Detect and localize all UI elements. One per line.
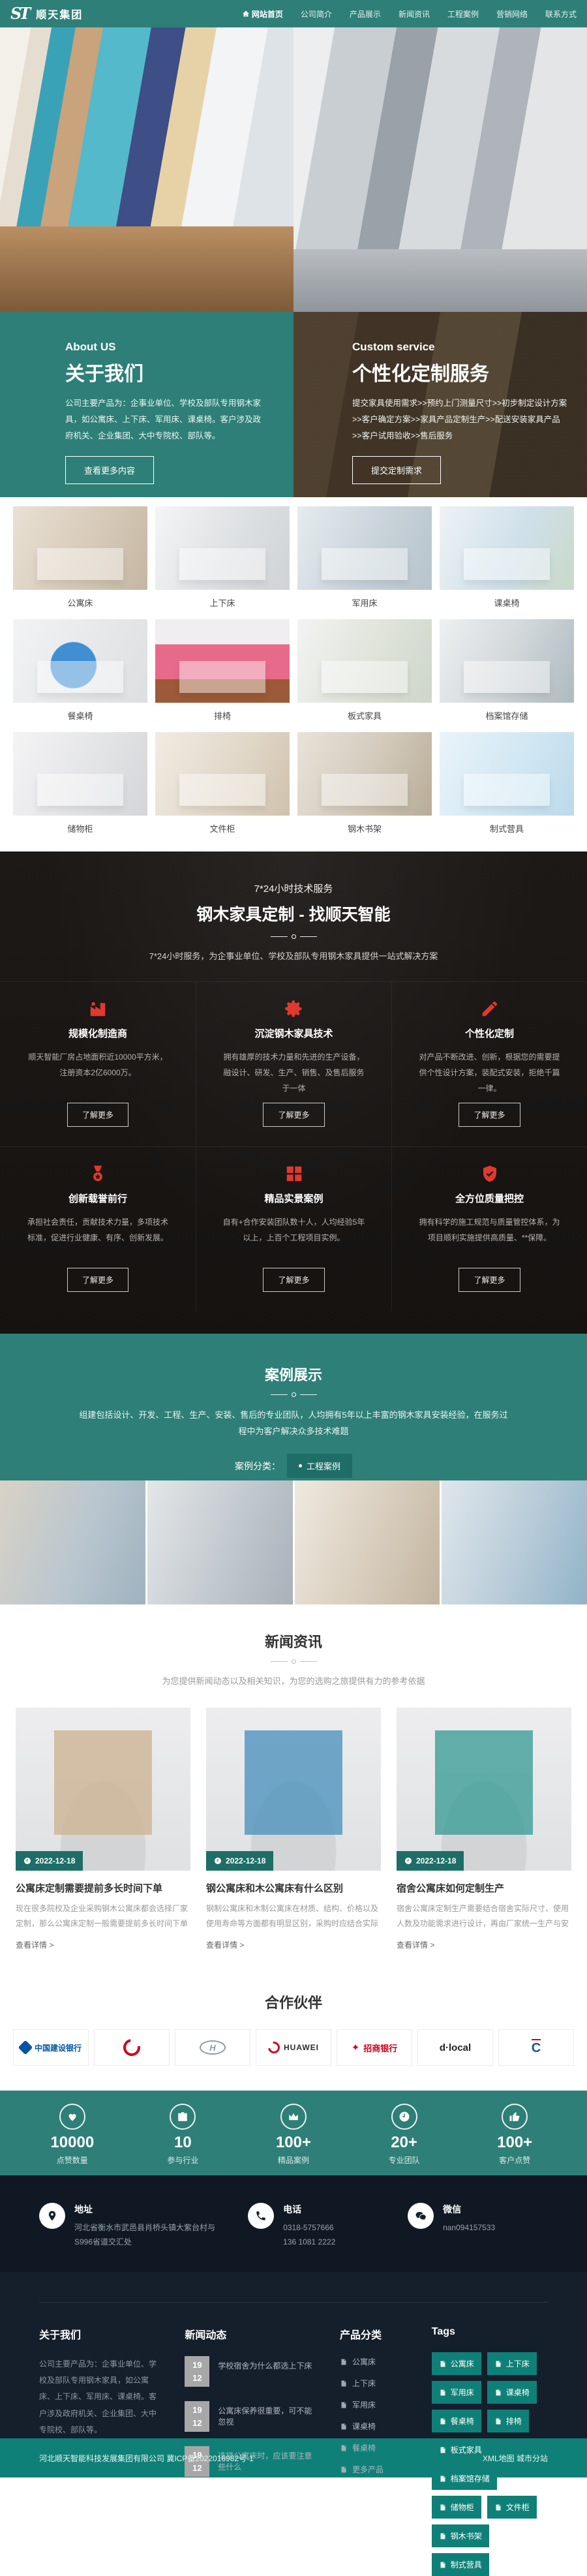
doc-icon (439, 2475, 447, 2483)
nav-item-news[interactable]: 新闻资讯 (399, 8, 430, 20)
news-image: 2022-12-18 (16, 1708, 190, 1871)
nav-label: 联系方式 (545, 8, 577, 20)
clock-icon (214, 1857, 222, 1865)
category-label: 军用床 (352, 2399, 376, 2410)
news-card[interactable]: 2022-12-18 钢公寓床和木公寓床有什么区别 钢制公寓床和木制公寓床在材质… (206, 1708, 381, 1951)
footer-about-text: 公司主要产品为：企事业单位、学校及部队专用钢木家具，如公寓床、上下床、军用床、课… (39, 2356, 160, 2438)
feature-card-innovation: 创新载誉前行 承担社会责任，贡献技术力量，多项技术标准，促进行业健康、有序、创新… (0, 1146, 196, 1311)
doc-icon (439, 2360, 447, 2368)
partners-section: 合作伙伴 中国建设银行 H HUAWEI ✦招商银行 d·local C (0, 1973, 587, 2091)
tag-button[interactable]: 课桌椅 (487, 2381, 537, 2404)
product-label: 档案馆存储 (440, 703, 574, 727)
product-label: 制式营具 (440, 816, 574, 840)
case-image-1[interactable] (0, 1480, 145, 1604)
tag-button[interactable]: 板式家具 (432, 2438, 489, 2461)
partner-logo-huawei[interactable]: HUAWEI (256, 2029, 331, 2066)
product-card-school-desk[interactable]: 课桌椅 (440, 506, 574, 614)
news-subtitle: 为您提供新闻动态以及相关知识，为您的选购之旅提供有力的参考依据 (16, 1674, 571, 1687)
factory-icon (25, 999, 171, 1021)
tag-button[interactable]: 储物柜 (432, 2496, 481, 2519)
feature-body: 自有+合作安装团队数十人，人均经验5年以上，上百个工程项目实例。 (221, 1214, 367, 1261)
product-image (13, 506, 147, 590)
footer-column-title: 新闻动态 (185, 2326, 315, 2342)
partner-logo-text: d·local (440, 2042, 471, 2053)
tag-button[interactable]: 军用床 (432, 2381, 481, 2404)
product-image (440, 619, 574, 703)
news-date: 2022-12-18 (416, 1856, 456, 1865)
nav-item-products[interactable]: 产品展示 (350, 8, 381, 20)
wechat-icon (408, 2203, 434, 2229)
partner-logo-text: C (532, 2039, 541, 2056)
category-label: 餐桌椅 (352, 2442, 376, 2453)
medal-icon (25, 1164, 171, 1186)
feature-title: 规模化制造商 (25, 1026, 171, 1040)
contact-address: 地址 河北省衡水市武邑县肖桥头镇大紫台村与 S996省道交汇处 (39, 2203, 228, 2245)
nav-item-cases[interactable]: 工程案例 (447, 8, 479, 20)
nav-item-home[interactable]: 网站首页 (242, 8, 283, 20)
footer-divider (39, 2302, 548, 2303)
partner-logo-dlocal[interactable]: d·local (417, 2029, 493, 2066)
case-showcase-section: 案例展示 组建包括设计、开发、工程、生产、安装、售后的专业团队，人均拥有5年以上… (0, 1334, 587, 1480)
news-card-title[interactable]: 公寓床定制需要提前多长时间下单 (16, 1881, 190, 1895)
product-card-military-bed[interactable]: 军用床 (297, 506, 432, 614)
news-date-badge: 2022-12-18 (206, 1851, 273, 1871)
stat-cases: 100+ 精品案例 (238, 2104, 349, 2162)
stat-value: 10 (128, 2134, 239, 2153)
footer-news-column: 新闻动态 1912 学校宿舍为什么都选上下床 1912 公寓床保养很重要，可不能… (185, 2326, 315, 2576)
footer-column-title: Tags (432, 2326, 548, 2338)
footer-categories-column: 产品分类 公寓床 上下床 军用床 课桌椅 餐桌椅 更多产品 (340, 2326, 407, 2576)
news-detail-link[interactable]: 查看详情 > (206, 1939, 244, 1950)
hero-banner (0, 27, 587, 312)
doc-icon (439, 2446, 447, 2454)
tag-button[interactable]: 制式营具 (432, 2553, 489, 2576)
section-divider-ornament (16, 1659, 571, 1664)
case-image-row (0, 1480, 587, 1604)
nav-label: 网站首页 (252, 8, 283, 20)
contact-phone: 电话 0318-5757666 136 1081 2222 (248, 2203, 388, 2245)
doc-icon (340, 2423, 348, 2430)
stat-label: 专业团队 (349, 2154, 460, 2166)
feature-body: 顺天智能厂房占地面积近10000平方米，注册资本2亿6000万。 (25, 1049, 171, 1096)
product-image (155, 732, 290, 816)
huawei-petal-icon (265, 2039, 282, 2055)
about-more-button[interactable]: 查看更多内容 (65, 456, 154, 484)
custom-service-panel: Custom service 个性化定制服务 提交家具使用需求>>预约上门测量尺… (293, 312, 587, 497)
product-image (440, 732, 574, 816)
contact-line: 136 1081 2222 (283, 2235, 335, 2250)
about-body: 公司主要产品为：企事业单位、学校及部队专用钢木家具，如公寓床、上下床、军用床、课… (65, 395, 267, 444)
category-label: 更多产品 (352, 2464, 384, 2475)
doc-icon (494, 2504, 502, 2511)
product-image (155, 506, 290, 590)
nav-label: 工程案例 (447, 8, 479, 20)
footer-category-link[interactable]: 军用床 (340, 2399, 407, 2410)
nav-label: 新闻资讯 (399, 8, 430, 20)
product-label: 板式家具 (297, 703, 432, 727)
feature-body: 承担社会责任，贡献技术力量，多项技术标准，促进行业健康、有序、创新发展。 (25, 1214, 171, 1261)
product-image (155, 619, 290, 703)
hero-image-wood-dorm (0, 27, 293, 312)
contact-line: 河北省衡水市武邑县肖桥头镇大紫台村与 (74, 2221, 215, 2235)
footer-news-title: 学校宿舍为什么都选上下床 (218, 2356, 312, 2387)
case-title: 案例展示 (0, 1364, 587, 1385)
doc-icon (340, 2444, 348, 2452)
case-filter-label: 案例分类： (235, 1460, 280, 1473)
nav-label: 公司简介 (301, 8, 332, 20)
nav-item-company[interactable]: 公司简介 (301, 8, 332, 20)
tag-button[interactable]: 文件柜 (487, 2496, 537, 2519)
product-label: 排椅 (155, 703, 290, 727)
footer-news-date: 1912 (185, 2401, 209, 2432)
footer-category-link[interactable]: 餐桌椅 (340, 2442, 407, 2453)
product-label: 文件柜 (155, 816, 290, 840)
doc-icon (494, 2360, 502, 2368)
product-label: 储物柜 (13, 816, 147, 840)
stat-value: 100+ (459, 2134, 570, 2153)
clock-icon (23, 1857, 31, 1865)
feature-body: 拥有雄厚的技术力量和先进的生产设备，融设计、研发、生产、销售、及售后服务于一体 (221, 1049, 367, 1096)
about-title: 关于我们 (65, 358, 267, 386)
product-image (440, 506, 574, 590)
stat-value: 100+ (238, 2134, 349, 2153)
product-image (13, 619, 147, 703)
stat-label: 参与行业 (128, 2154, 239, 2166)
feature-card-cases: 精品实景案例 自有+合作安装团队数十人，人均经验5年以上，上百个工程项目实例。 … (196, 1146, 391, 1311)
tag-button[interactable]: 档案馆存储 (432, 2467, 497, 2490)
partner-logo-ccb[interactable]: 中国建设银行 (13, 2029, 89, 2066)
footer-tags-column: Tags 公寓床 上下床 军用床 课桌椅 餐桌椅 排椅 板式家具 档案馆存储 储… (432, 2326, 548, 2576)
contact-label: 微信 (443, 2203, 495, 2216)
news-detail-link[interactable]: 查看详情 > (16, 1939, 53, 1950)
product-card-bookshelf[interactable]: 钢木书架 (297, 732, 432, 840)
contact-line: S996省道交汇处 (74, 2235, 215, 2250)
product-category-grid: 公寓床 上下床 军用床 课桌椅 餐桌椅 排椅 板式家具 档案馆存储 储物柜 文件… (0, 497, 587, 851)
tag-button[interactable]: 公寓床 (432, 2352, 481, 2375)
stat-likes: 10000 点赞数量 (17, 2104, 128, 2162)
stat-team: 20+ 专业团队 (349, 2104, 460, 2162)
learn-more-button[interactable]: 了解更多 (263, 1268, 324, 1292)
footer-news-date: 1912 (185, 2356, 209, 2387)
feature-cards: 规模化制造商 顺天智能厂房占地面积近10000平方米，注册资本2亿6000万。 … (0, 981, 587, 1311)
about-panel: About US 关于我们 公司主要产品为：企事业单位、学校及部队专用钢木家具，… (0, 312, 293, 497)
product-card-locker[interactable]: 储物柜 (13, 732, 147, 840)
category-label: 公寓床 (352, 2356, 376, 2367)
tag-button[interactable]: 排椅 (487, 2410, 529, 2432)
tech-subtitle: 7*24小时服务，为企事业单位、学校及部队专用钢木家具提供一站式解决方案 (0, 949, 587, 962)
contact-line: 0318-5757666 (283, 2221, 335, 2235)
news-card-title[interactable]: 宿舍公寓床如何定制生产 (397, 1881, 571, 1895)
red-swirl-logo-icon (120, 2036, 143, 2059)
doc-icon (439, 2561, 447, 2569)
case-filter-value: 工程案例 (307, 1460, 340, 1472)
product-label: 钢木书架 (297, 816, 432, 840)
news-card-title[interactable]: 钢公寓床和木公寓床有什么区别 (206, 1881, 381, 1895)
product-image (297, 619, 432, 703)
nav-label: 产品展示 (350, 8, 381, 20)
case-image-4[interactable] (442, 1480, 587, 1604)
product-card-row-chairs[interactable]: 排椅 (155, 619, 290, 727)
clock-icon (391, 2104, 417, 2130)
contact-label: 电话 (283, 2203, 335, 2216)
stat-label: 客户点赞 (459, 2154, 570, 2166)
product-label: 课桌椅 (440, 590, 574, 614)
news-section: 新闻资讯 为您提供新闻动态以及相关知识，为您的选购之旅提供有力的参考依据 202… (0, 1604, 587, 1973)
stat-label: 精品案例 (238, 2154, 349, 2166)
tech-title: 钢木家具定制 - 找顺天智能 (0, 902, 587, 925)
tech-service-section: 7*24小时技术服务 钢木家具定制 - 找顺天智能 7*24小时服务，为企事业单… (0, 851, 587, 1334)
bullet-dot-icon (299, 1464, 302, 1467)
submit-custom-request-button[interactable]: 提交定制需求 (352, 456, 441, 484)
pencil-icon (417, 999, 562, 1021)
stat-industries: 10 参与行业 (128, 2104, 239, 2162)
contact-line: nan094157533 (443, 2221, 495, 2235)
briefcase-icon (170, 2104, 196, 2130)
learn-more-button[interactable]: 了解更多 (263, 1103, 324, 1127)
contact-label: 地址 (74, 2203, 215, 2216)
footer-category-link[interactable]: 公寓床 (340, 2356, 407, 2367)
sitemap-links[interactable]: XML地图 城市分站 (483, 2453, 548, 2464)
stat-value: 20+ (349, 2134, 460, 2153)
copyright-icp-text: 河北顺天智能科技发展集团有限公司 冀ICP备2022016982号-1 (39, 2453, 254, 2464)
shield-icon (417, 1164, 562, 1186)
ccb-logo-icon (18, 2040, 33, 2055)
nav-item-contact[interactable]: 联系方式 (545, 8, 577, 20)
footer-about-column: 关于我们 公司主要产品为：企事业单位、学校及部队专用钢木家具，如公寓床、上下床、… (39, 2326, 160, 2576)
product-label: 公寓床 (13, 590, 147, 614)
home-icon (242, 10, 250, 18)
news-image: 2022-12-18 (397, 1708, 571, 1871)
doc-icon (439, 2417, 447, 2425)
news-image: 2022-12-18 (206, 1708, 381, 1871)
partners-title: 合作伙伴 (13, 1991, 574, 2012)
footer-category-link[interactable]: 更多产品 (340, 2464, 407, 2475)
tag-button[interactable]: 钢木书架 (432, 2524, 489, 2547)
tag-button[interactable]: 餐桌椅 (432, 2410, 481, 2432)
heart-icon (59, 2104, 85, 2130)
tag-button[interactable]: 上下床 (487, 2352, 537, 2375)
news-detail-link[interactable]: 查看详情 > (397, 1939, 434, 1950)
phone-icon (248, 2203, 274, 2229)
case-image-2[interactable] (147, 1480, 293, 1604)
partner-logo-text: 招商银行 (363, 2042, 397, 2054)
main-nav: 网站首页 公司简介 产品展示 新闻资讯 工程案例 营销网络 联系方式 (242, 8, 577, 20)
footer: 关于我们 公司主要产品为：企事业单位、学校及部队专用钢木家具，如公寓床、上下床、… (0, 2272, 587, 2438)
partner-logo-swirl[interactable] (94, 2029, 170, 2066)
grid-icon (221, 1164, 367, 1186)
nav-item-marketing[interactable]: 营销网络 (496, 8, 528, 20)
product-image (297, 506, 432, 590)
learn-more-button[interactable]: 了解更多 (67, 1268, 128, 1292)
top-navigation-bar: ST 顺天集团 网站首页 公司简介 产品展示 新闻资讯 工程案例 营销网络 联系… (0, 0, 587, 27)
footer-column-title: 关于我们 (39, 2326, 160, 2342)
news-date: 2022-12-18 (226, 1856, 265, 1865)
stats-strip: 10000 点赞数量 10 参与行业 100+ 精品案例 20+ 专业团队 10… (0, 2091, 587, 2175)
doc-icon (340, 2358, 348, 2366)
doc-icon (439, 2504, 447, 2511)
stat-customer-likes: 100+ 客户点赞 (459, 2104, 570, 2162)
doc-icon (494, 2417, 502, 2425)
gear-icon (221, 999, 367, 1021)
doc-icon (439, 2389, 447, 2397)
feature-title: 全方位质量把控 (417, 1191, 562, 1205)
feature-title: 精品实景案例 (221, 1191, 367, 1205)
custom-title: 个性化定制服务 (352, 358, 567, 386)
cmb-logo-icon: ✦ (352, 2042, 360, 2053)
product-card-panel-furniture[interactable]: 板式家具 (297, 619, 432, 727)
product-card-bunk-bed[interactable]: 上下床 (155, 506, 290, 614)
crown-icon (280, 2104, 307, 2130)
case-subtitle: 组建包括设计、开发、工程、生产、安装、售后的专业团队，人均拥有5年以上丰富的钢木… (78, 1407, 509, 1439)
news-card[interactable]: 2022-12-18 宿舍公寓床如何定制生产 宿舍公寓床定制生产需要结合宿舍实际… (397, 1708, 571, 1951)
partner-logo-citi[interactable]: C (498, 2029, 574, 2066)
product-card-standard-gear[interactable]: 制式营具 (440, 732, 574, 840)
stat-label: 点赞数量 (17, 2154, 128, 2166)
hyundai-logo-icon: H (200, 2040, 226, 2055)
partner-logo-cmb[interactable]: ✦招商银行 (337, 2029, 412, 2066)
case-image-3[interactable] (295, 1480, 440, 1604)
category-label: 上下床 (352, 2378, 376, 2389)
section-divider-ornament (0, 1392, 587, 1397)
product-card-archive-storage[interactable]: 档案馆存储 (440, 619, 574, 727)
feature-body: 拥有科学的施工规范与质量管控体系，为项目顺利实施提供高质量、**保障。 (417, 1214, 562, 1261)
product-card-apartment-bed[interactable]: 公寓床 (13, 506, 147, 614)
partner-logo-hyundai[interactable]: H (175, 2029, 250, 2066)
brand-name: 顺天集团 (36, 6, 83, 22)
stat-value: 10000 (17, 2134, 128, 2153)
feature-card-quality: 全方位质量把控 拥有科学的施工规范与质量管控体系，为项目顺利实施提供高质量、**… (391, 1146, 587, 1311)
clock-icon (404, 1857, 412, 1865)
doc-icon (340, 2401, 348, 2409)
feature-title: 沉淀钢木家具技术 (221, 1026, 367, 1040)
news-date: 2022-12-18 (35, 1856, 75, 1865)
custom-process: 提交家具使用需求>>预约上门测量尺寸>>初步制定设计方案>>客户确定方案>>家具… (352, 395, 567, 444)
news-title: 新闻资讯 (16, 1631, 571, 1651)
contact-strip: 地址 河北省衡水市武邑县肖桥头镇大紫台村与 S996省道交汇处 电话 0318-… (0, 2175, 587, 2272)
product-image (297, 732, 432, 816)
doc-icon (340, 2380, 348, 2387)
category-label: 课桌椅 (352, 2421, 376, 2432)
tech-eyebrow: 7*24小时技术服务 (0, 882, 587, 895)
news-card-excerpt: 现在很多院校及企业采购钢木公寓床都会选择厂家定制，那么公寓床定制一般需要提前多长… (16, 1901, 190, 1931)
product-label: 上下床 (155, 590, 290, 614)
custom-eyebrow: Custom service (352, 341, 567, 354)
learn-more-button[interactable]: 了解更多 (67, 1103, 128, 1127)
product-card-dining-set[interactable]: 餐桌椅 (13, 619, 147, 727)
footer-column-title: 产品分类 (340, 2326, 407, 2342)
location-pin-icon (39, 2203, 65, 2229)
news-card-excerpt: 钢制公寓床和木制公寓床在材质、结构、价格以及使用寿命等方面都有明显区别，采购时应… (206, 1901, 381, 1931)
product-label: 餐桌椅 (13, 703, 147, 727)
partner-logo-text: 中国建设银行 (35, 2042, 82, 2053)
about-eyebrow: About US (65, 341, 267, 354)
footer-news-item[interactable]: 1912 公寓床保养很重要，可不能忽视 (185, 2401, 315, 2432)
case-filter-engineering-button[interactable]: 工程案例 (287, 1454, 352, 1478)
footer-category-link[interactable]: 上下床 (340, 2378, 407, 2389)
news-card[interactable]: 2022-12-18 公寓床定制需要提前多长时间下单 现在很多院校及企业采购钢木… (16, 1708, 190, 1951)
learn-more-button[interactable]: 了解更多 (459, 1268, 520, 1292)
doc-icon (494, 2389, 502, 2397)
product-card-file-cabinet[interactable]: 文件柜 (155, 732, 290, 840)
footer-category-link[interactable]: 课桌椅 (340, 2421, 407, 2432)
feature-card-manufacturer: 规模化制造商 顺天智能厂房占地面积近10000平方米，注册资本2亿6000万。 … (0, 982, 196, 1146)
partner-logo-text: HUAWEI (284, 2043, 319, 2052)
doc-icon (439, 2532, 447, 2540)
footer-news-item[interactable]: 1912 学校宿舍为什么都选上下床 (185, 2356, 315, 2387)
brand-logo: ST (10, 6, 28, 22)
doc-icon (340, 2466, 348, 2474)
product-image (13, 732, 147, 816)
news-date-badge: 2022-12-18 (16, 1851, 83, 1871)
feature-card-customization: 个性化定制 对产品不断改进、创新，根据您的需要提供个性设计方案，装配式安装，拒绝… (391, 982, 587, 1146)
feature-body: 对产品不断改进、创新，根据您的需要提供个性设计方案，装配式安装，拒绝千篇一律。 (417, 1049, 562, 1096)
hero-image-steel-bunk (293, 27, 587, 312)
learn-more-button[interactable]: 了解更多 (459, 1103, 520, 1127)
about-custom-section: About US 关于我们 公司主要产品为：企事业单位、学校及部队专用钢木家具，… (0, 312, 587, 497)
feature-title: 创新载誉前行 (25, 1191, 171, 1205)
feature-title: 个性化定制 (417, 1026, 562, 1040)
feature-card-technology: 沉淀钢木家具技术 拥有雄厚的技术力量和先进的生产设备，融设计、研发、生产、销售、… (196, 982, 391, 1146)
contact-wechat: 微信 nan094157533 (408, 2203, 548, 2245)
thumb-up-icon (502, 2104, 528, 2130)
section-divider-ornament (0, 934, 587, 939)
news-card-excerpt: 宿舍公寓床定制生产需要结合宿舍实际尺寸、使用人数及功能需求进行设计，再由厂家统一… (397, 1901, 571, 1931)
news-date-badge: 2022-12-18 (397, 1851, 464, 1871)
product-label: 军用床 (297, 590, 432, 614)
footer-news-title: 公寓床保养很重要，可不能忽视 (218, 2401, 315, 2432)
nav-label: 营销网络 (496, 8, 528, 20)
